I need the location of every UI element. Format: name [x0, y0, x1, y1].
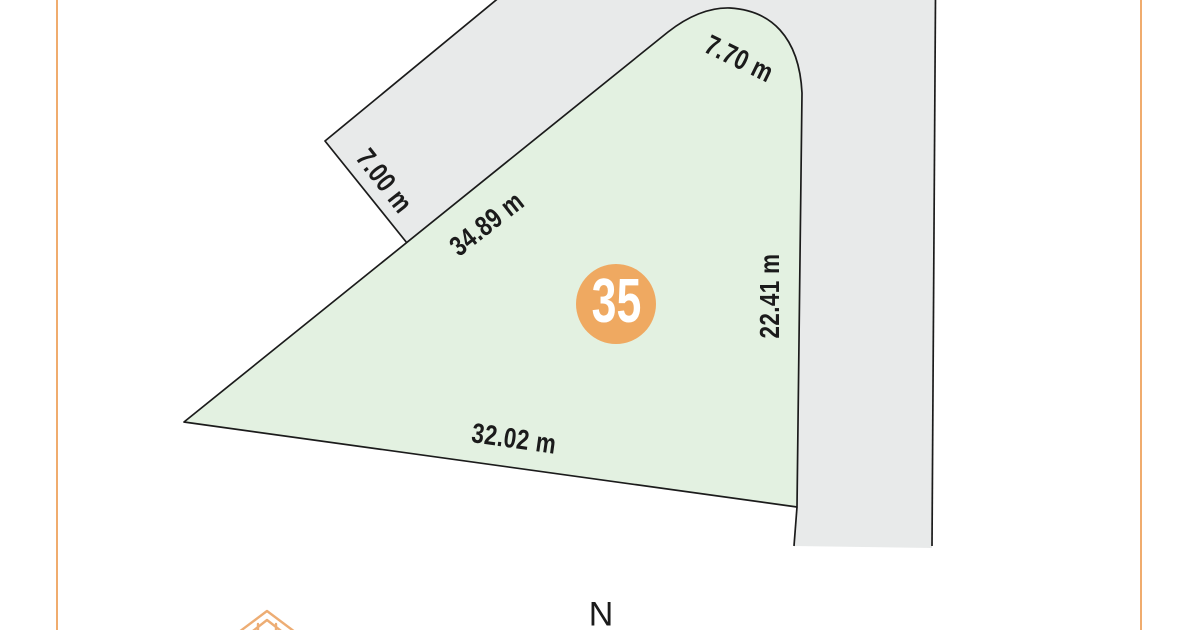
lot-number-badge: 35	[576, 264, 656, 344]
house-icon	[239, 611, 295, 630]
frame-border-left	[56, 0, 58, 630]
dimension-label-right-edge: 22.41 m	[754, 254, 786, 339]
north-indicator: N	[589, 596, 614, 635]
frame-border-right	[1140, 0, 1142, 630]
lot-number: 35	[591, 271, 641, 337]
